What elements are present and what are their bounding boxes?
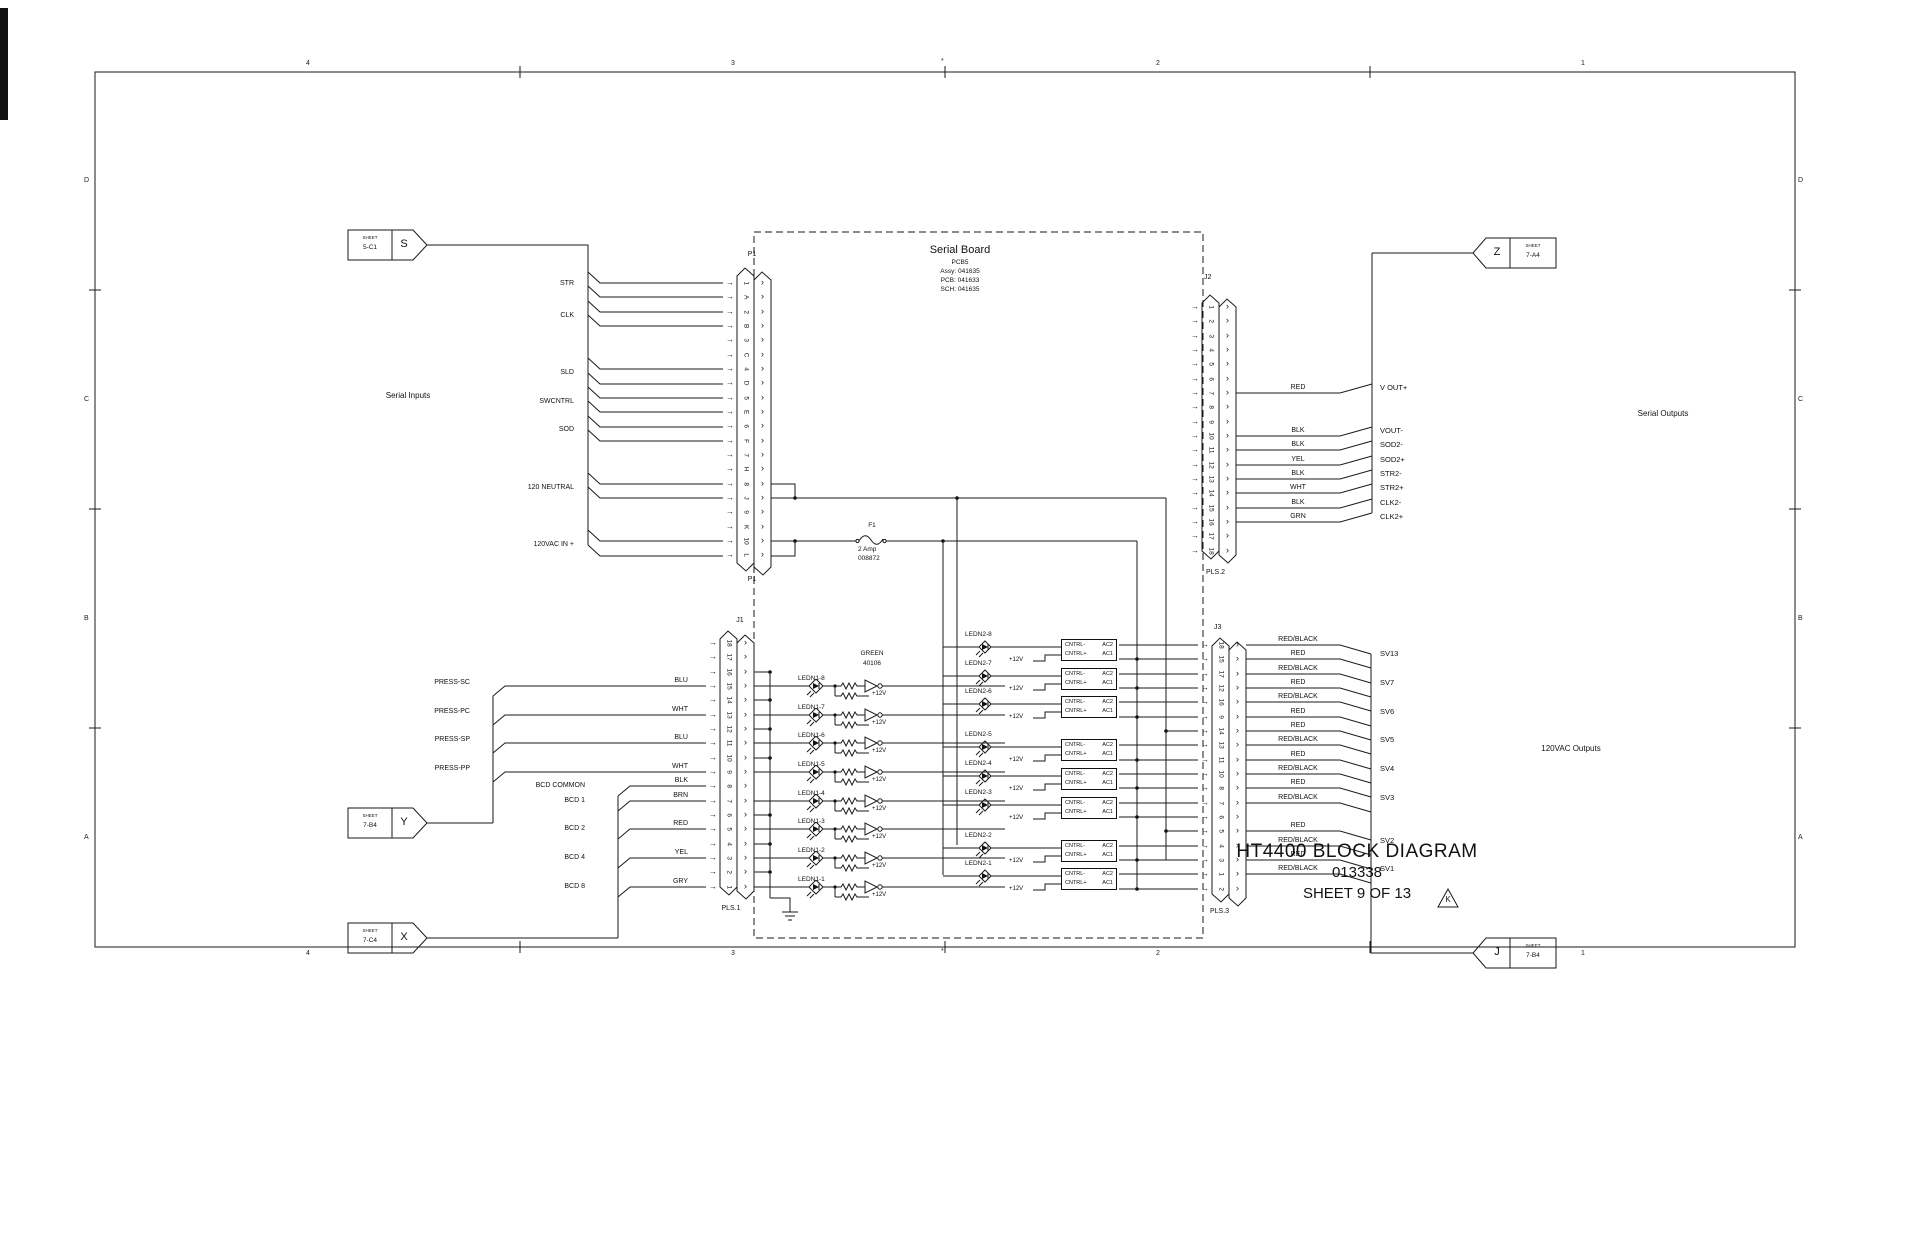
wire-color-label: BLK [1258,438,1338,452]
pin-chevron-icon: › [1229,781,1246,795]
pin-chevron-icon: › [737,822,754,836]
wire-color-label: RED [1256,748,1340,762]
pin-arrow-icon: → [1198,710,1212,724]
pin-arrow-icon: → [1188,400,1202,414]
pin-chevron-icon: › [1229,824,1246,838]
signal-label [1380,410,1470,424]
wire-color-label: WHT [598,703,688,717]
signal-label [1380,805,1440,819]
pin-arrow-icon: → [1188,544,1202,558]
ic-part-label: 40106 [845,660,899,667]
signal-label [1380,367,1470,381]
wire-color-label: BLK [1258,467,1338,481]
signal-label: SWCNTRL [454,397,574,406]
signal-label: 120 NEUTRAL [454,483,574,492]
pin-arrow-icon: → [723,405,737,419]
signal-label: BCD 8 [465,882,585,891]
wire-color-label [1258,367,1338,381]
pin-arrow-icon: → [706,679,720,693]
pin-chevron-icon: › [754,290,771,304]
wire-color-label [1258,395,1338,409]
wire-color-label [598,717,688,731]
pin-chevron-icon: › [754,391,771,405]
connector-j3: →→→→→→→→→→→→→→→→→→ 181517121691413111087… [1198,638,1246,896]
signal-label: 120VAC IN + [454,540,574,549]
connector-j2: →→→→→→→→→→→→→→→→→→ 123456789101112131415… [1188,300,1236,558]
pin-chevron-icon: › [1219,486,1236,500]
pin-chevron-icon: › [754,534,771,548]
pin-arrow-icon: → [1188,372,1202,386]
pin-chevron-icon: › [737,665,754,679]
ac-driver-row: LEDN2-3 CNTRL- AC2 CNTRL+ AC1 +12V [965,789,1165,827]
wire-color-label: RED [1258,381,1338,395]
signal-label [1380,719,1440,733]
pin-arrow-icon: → [1198,867,1212,881]
wire-color-label: BRN [598,789,688,803]
ac2-label: AC2 [1102,770,1113,779]
pin-arrow-icon: → [706,765,720,779]
ctrl-plus-label: CNTRL+ [1065,879,1102,888]
supply-label: +12V [872,691,886,697]
pin-chevron-icon: › [754,505,771,519]
wire-color-label: RED [598,817,688,831]
pin-chevron-icon: › [1229,767,1246,781]
pin-chevron-icon: › [1219,429,1236,443]
pin-chevron-icon: › [1229,839,1246,853]
pin-arrow-icon: → [1188,458,1202,472]
connector-j1-plug-label: PLS.1 [708,905,754,912]
grid-row-label: D [84,177,89,184]
j3-wire-colors: RED/BLACKREDRED/BLACKREDRED/BLACKREDREDR… [1256,633,1340,891]
pin-chevron-icon: › [754,448,771,462]
pin-chevron-icon: › [1229,710,1246,724]
ac-driver-box: CNTRL- AC2 CNTRL+ AC1 [1061,668,1117,690]
wire-color-label: RED/BLACK [1256,834,1340,848]
wire-color-label: BLK [1258,424,1338,438]
ctrl-plus-label: CNTRL+ [1065,707,1102,716]
pin-arrow-icon: → [723,319,737,333]
signal-label: SV6 [1380,705,1440,719]
ac2-label: AC2 [1102,698,1113,707]
signal-label [1380,848,1440,862]
supply-label: +12V [872,748,886,754]
wire-color-label: RED [1256,705,1340,719]
signal-label: PRESS-SC [350,678,470,687]
grid-col-label: 4 [293,60,323,67]
pin-arrow-icon: → [723,448,737,462]
connector-j3-plug-label: PLS.3 [1210,908,1229,915]
grid-col-label: 1 [1568,950,1598,957]
wire-color-label [598,645,688,659]
wire-color-label [1258,524,1338,538]
wire-color-label [598,746,688,760]
ac1-label: AC1 [1102,779,1113,788]
wire-color-label: RED [1256,776,1340,790]
signal-label: CLK2- [1380,496,1470,510]
pin-chevron-icon: › [1219,386,1236,400]
signal-label: BCD COMMON [465,781,585,790]
wire-color-label [598,803,688,817]
pin-chevron-icon: › [1219,329,1236,343]
wire-color-label: RED [1256,647,1340,661]
signal-label [1380,633,1440,647]
signal-label: CLK [454,311,574,320]
pin-chevron-icon: › [754,276,771,290]
pin-chevron-icon: › [1219,443,1236,457]
wire-color-label [1256,805,1340,819]
pin-arrow-icon: → [1188,429,1202,443]
pin-chevron-icon: › [737,708,754,722]
wire-color-label: WHT [598,760,688,774]
wire-color-label [598,631,688,645]
ctrl-minus-label: CNTRL- [1065,770,1102,779]
grid-row-label: C [84,396,89,403]
pin-arrow-icon: → [1198,681,1212,695]
grid-row-label: A [1798,834,1803,841]
ctrl-minus-label: CNTRL- [1065,799,1102,808]
signal-label: VOUT- [1380,424,1470,438]
pin-arrow-icon: → [706,822,720,836]
signal-label: SV1 [1380,862,1440,876]
signal-label: SLD [454,368,574,377]
pin-chevron-icon: › [754,520,771,534]
offsheet-sheet-ref: 7-A4 [1510,252,1556,259]
ac-driver-box: CNTRL- AC2 CNTRL+ AC1 [1061,797,1117,819]
wire-color-label: WHT [1258,481,1338,495]
pin-chevron-icon: › [1219,415,1236,429]
pin-arrow-icon: → [706,837,720,851]
pin-arrow-icon: → [1198,652,1212,666]
pin-number: 18 [1203,542,1217,559]
pin-arrow-icon: → [1198,781,1212,795]
offsheet-sheet-ref: 7-B4 [348,822,392,829]
pin-chevron-icon: › [1229,753,1246,767]
pin-chevron-icon: › [737,880,754,894]
grid-col-label: 4 [293,950,323,957]
pin-arrow-icon: → [723,348,737,362]
grid-col-label: 3 [718,60,748,67]
pin-chevron-icon: › [1219,515,1236,529]
pin-arrow-icon: → [723,362,737,376]
wire-color-label: RED/BLACK [1256,633,1340,647]
pin-arrow-icon: → [1188,415,1202,429]
pin-chevron-icon: › [1229,738,1246,752]
pin-arrow-icon: → [706,851,720,865]
ac1-label: AC1 [1102,650,1113,659]
supply-label: +12V [1009,815,1023,821]
ac1-label: AC1 [1102,808,1113,817]
j1-wire-colors: BLUWHTBLUWHTBLKBRNREDYELGRY [598,631,688,889]
pin-arrow-icon: → [723,534,737,548]
ac2-label: AC2 [1102,641,1113,650]
j3-output-signals: SV13SV7SV6SV5SV4SV3SV2SV1 [1380,633,1440,891]
signal-label: STR2- [1380,467,1470,481]
pin-chevron-icon: › [754,491,771,505]
wire-color-label [1258,410,1338,424]
grid-row-label: C [1798,396,1803,403]
ctrl-plus-label: CNTRL+ [1065,808,1102,817]
ac1-label: AC1 [1102,879,1113,888]
grid-col-label: 2 [1143,60,1173,67]
pin-arrow-icon: → [706,665,720,679]
offsheet-ref-j: J SHEET 7-B4 [1473,938,1556,968]
signal-label [1380,776,1440,790]
ctrl-plus-label: CNTRL+ [1065,750,1102,759]
pin-arrow-icon: → [723,305,737,319]
offsheet-sheet-label: SHEET [1510,243,1556,248]
connector-p1-label: P1 [735,576,769,583]
pin-chevron-icon: › [737,693,754,707]
pin-chevron-icon: › [754,548,771,562]
grid-row-label: A [84,834,89,841]
pin-arrow-icon: → [706,636,720,650]
supply-label: +12V [872,777,886,783]
fuse-ref-label: F1 [855,522,889,529]
supply-label: +12V [872,806,886,812]
connector-p1: →→→→→→→→→→→→→→→→→→→→ 1A2B3C4D5E6F7H8J9K1… [723,276,771,563]
ac2-label: AC2 [1102,799,1113,808]
ctrl-plus-label: CNTRL+ [1065,851,1102,860]
serial-board-info: PCB: 041633 [880,277,1040,284]
pin-chevron-icon: › [1219,472,1236,486]
pin-arrow-icon: → [1188,386,1202,400]
signal-label: SV13 [1380,647,1440,661]
supply-label: +12V [1009,714,1023,720]
pin-arrow-icon: → [723,477,737,491]
grid-row-label: B [84,615,89,622]
wire-color-label: RED/BLACK [1256,862,1340,876]
offsheet-sheet-ref: 7-B4 [1510,952,1556,959]
pin-chevron-icon: › [1229,681,1246,695]
pin-chevron-icon: › [1219,529,1236,543]
signal-label [1380,539,1470,553]
ac2-label: AC2 [1102,842,1113,851]
offsheet-sheet-label: SHEET [348,235,392,240]
pin-arrow-icon: → [1198,796,1212,810]
pin-arrow-icon: → [1188,343,1202,357]
serial-board-info: SCH: 041635 [880,286,1040,293]
border-center-mark: * [941,948,944,955]
signal-label: PRESS-PP [350,764,470,773]
pin-arrow-icon: → [1188,314,1202,328]
signal-label: PRESS-SP [350,735,470,744]
ac-driver-box: CNTRL- AC2 CNTRL+ AC1 [1061,639,1117,661]
ac-driver-box: CNTRL- AC2 CNTRL+ AC1 [1061,739,1117,761]
ctrl-minus-label: CNTRL- [1065,670,1102,679]
ctrl-minus-label: CNTRL- [1065,698,1102,707]
pin-chevron-icon: › [1229,867,1246,881]
ctrl-minus-label: CNTRL- [1065,842,1102,851]
signal-label: SV5 [1380,733,1440,747]
grid-col-label: 2 [1143,950,1173,957]
offsheet-sheet-label: SHEET [1510,943,1556,948]
pin-arrow-icon: → [1188,486,1202,500]
signal-label [1380,524,1470,538]
wire-color-label [1258,295,1338,309]
signal-label [1380,690,1440,704]
pin-arrow-icon: → [706,751,720,765]
ctrl-minus-label: CNTRL- [1065,741,1102,750]
fuse-part-label: 008872 [858,555,880,562]
pin-arrow-icon: → [1188,515,1202,529]
serial-inputs-label: Serial Inputs [348,391,468,400]
pin-chevron-icon: › [737,722,754,736]
pin-arrow-icon: → [1198,839,1212,853]
connector-p1-label: P1 [735,251,769,258]
pin-chevron-icon: › [737,751,754,765]
pin-arrow-icon: → [1188,357,1202,371]
wire-color-label: RED [1256,848,1340,862]
pin-chevron-icon: › [1229,695,1246,709]
pin-arrow-icon: → [706,736,720,750]
pin-arrow-icon: → [1188,300,1202,314]
schematic-lines [0,0,1908,1235]
offsheet-letter: X [392,931,416,943]
signal-label: SV4 [1380,762,1440,776]
signal-label: V OUT+ [1380,381,1470,395]
signal-label [1380,338,1470,352]
pin-chevron-icon: › [737,779,754,793]
grid-col-label: 3 [718,950,748,957]
pin-chevron-icon: › [1229,638,1246,652]
pin-chevron-icon: › [1219,544,1236,558]
offsheet-ref-y: SHEET 7-B4 Y [348,808,428,838]
ac-driver-box: CNTRL- AC2 CNTRL+ AC1 [1061,696,1117,718]
offsheet-letter: Z [1485,246,1509,258]
offsheet-letter: S [392,238,416,250]
wire-color-label: GRN [1258,510,1338,524]
offsheet-sheet-ref: 5-C1 [348,244,392,251]
fuse-rating-label: 2 Amp [858,546,876,553]
pin-chevron-icon: › [754,348,771,362]
serial-outputs-label: Serial Outputs [1603,409,1723,418]
pin-chevron-icon: › [1229,810,1246,824]
pin-chevron-icon: › [754,333,771,347]
pin-chevron-icon: › [1229,882,1246,896]
pin-chevron-icon: › [754,434,771,448]
pin-arrow-icon: → [723,491,737,505]
schematic-sheet: 4 3 2 1 4 3 2 1 D C B A D C B A * * SHEE… [0,0,1908,1235]
pin-arrow-icon: → [1188,501,1202,515]
pin-arrow-icon: → [706,693,720,707]
wire-color-label: RED/BLACK [1256,762,1340,776]
pin-chevron-icon: › [754,376,771,390]
pin-chevron-icon: › [737,736,754,750]
j2-wire-colors: REDBLKBLKYELBLKWHTBLKGRN [1258,295,1338,553]
signal-label: PRESS-PC [350,707,470,716]
pin-chevron-icon: › [737,650,754,664]
wire-color-label: GRY [598,875,688,889]
signal-label: BCD 1 [465,796,585,805]
ac2-label: AC2 [1102,741,1113,750]
pin-arrow-icon: → [706,808,720,822]
wire-color-label: BLU [598,674,688,688]
pin-chevron-icon: › [754,477,771,491]
ac-driver-box: CNTRL- AC2 CNTRL+ AC1 [1061,768,1117,790]
pin-arrow-icon: → [1198,667,1212,681]
ac2-label: AC2 [1102,670,1113,679]
connector-j1-label: J1 [723,617,757,624]
serial-board-title: Serial Board [880,244,1040,256]
signal-label: SOD [454,425,574,434]
pin-chevron-icon: › [1219,300,1236,314]
j2-output-signals: V OUT+VOUT-SOD2-SOD2+STR2-STR2+CLK2-CLK2… [1380,295,1470,553]
supply-label: +12V [872,720,886,726]
supply-label: +12V [872,863,886,869]
ac1-label: AC1 [1102,707,1113,716]
wire-color-label: RED [1256,676,1340,690]
pin-number: 1 [721,878,735,895]
signal-label: SV2 [1380,834,1440,848]
ac1-label: AC1 [1102,851,1113,860]
wire-color-label [1258,539,1338,553]
pin-arrow-icon: → [1188,529,1202,543]
ac-driver-box: CNTRL- AC2 CNTRL+ AC1 [1061,840,1117,862]
ac1-label: AC1 [1102,679,1113,688]
supply-label: +12V [872,834,886,840]
pin-arrow-icon: → [706,779,720,793]
offsheet-sheet-label: SHEET [348,928,392,933]
pin-chevron-icon: › [1219,372,1236,386]
pin-arrow-icon: → [723,276,737,290]
pin-chevron-icon: › [1219,400,1236,414]
connector-j1: →→→→→→→→→→→→→→→→→→ 181716151413121110987… [706,636,754,894]
signal-label [1380,395,1470,409]
wire-color-label [1258,352,1338,366]
pin-arrow-icon: → [706,708,720,722]
signal-label [1380,662,1440,676]
ctrl-plus-label: CNTRL+ [1065,779,1102,788]
vac-outputs-label: 120VAC Outputs [1511,744,1631,753]
pin-chevron-icon: › [1219,314,1236,328]
pin-arrow-icon: → [723,434,737,448]
pin-chevron-icon: › [1219,458,1236,472]
wire-color-label: BLU [598,731,688,745]
pin-chevron-icon: › [1229,667,1246,681]
signal-label [1380,309,1470,323]
ac-driver-box: CNTRL- AC2 CNTRL+ AC1 [1061,868,1117,890]
pin-chevron-icon: › [1229,724,1246,738]
ac-driver-row: LEDN2-6 CNTRL- AC2 CNTRL+ AC1 +12V [965,688,1165,726]
pin-arrow-icon: → [723,462,737,476]
wire-color-label: RED/BLACK [1256,662,1340,676]
signal-label: BCD 2 [465,824,585,833]
pin-chevron-icon: › [737,679,754,693]
offsheet-letter: Y [392,816,416,828]
pin-arrow-icon: → [706,650,720,664]
signal-label [1380,295,1470,309]
pin-arrow-icon: → [1188,472,1202,486]
wire-color-label: BLK [1258,496,1338,510]
pin-arrow-icon: → [706,794,720,808]
pin-chevron-icon: › [754,305,771,319]
pin-arrow-icon: → [723,419,737,433]
pin-arrow-icon: → [1198,724,1212,738]
pin-arrow-icon: → [723,520,737,534]
wire-color-label: YEL [1258,453,1338,467]
pin-arrow-icon: → [723,333,737,347]
pin-arrow-icon: → [723,391,737,405]
pin-arrow-icon: → [1188,443,1202,457]
pin-arrow-icon: → [723,505,737,519]
wire-color-label [598,832,688,846]
offsheet-ref-z: Z SHEET 7-A4 [1473,238,1556,268]
signal-label: BCD 4 [465,853,585,862]
offsheet-ref-s: SHEET 5-C1 S [348,230,428,260]
revision-letter: K [1438,895,1458,904]
ac1-label: AC1 [1102,750,1113,759]
grid-col-label: 1 [1568,60,1598,67]
